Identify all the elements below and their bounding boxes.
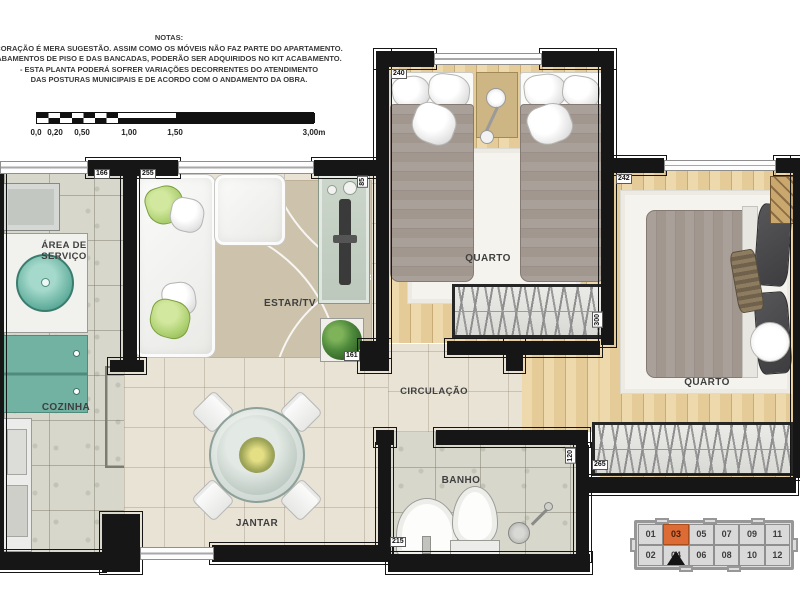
label-circulacao: CIRCULAÇÃO [390,386,478,397]
wall [0,168,4,556]
scale-segment [130,118,176,123]
dim-tag: 255 [140,169,156,179]
lamp-base [480,130,494,144]
sink-faucet [422,536,431,554]
unit-cell-07[interactable]: 07 [714,524,739,545]
scale-bar-graphic [36,112,314,124]
scale-label: 1,00 [121,128,137,137]
label-line: ÁREA DE [24,240,104,251]
wall-banho-top [436,430,588,445]
wall-door-jamb [506,341,523,371]
label-jantar: JANTAR [222,518,292,529]
dim-tag: 242 [616,174,632,184]
keyplan-grid: 01 03 05 07 09 11 02 04 06 08 10 12 [638,524,790,566]
wall [314,160,376,176]
dim-tag: 166 [94,169,110,179]
label-estar: ESTAR/TV [250,298,330,309]
tv-stand [333,235,357,243]
notes-line: - ESTA PLANTA PODERÁ SOFRER VARIAÇÕES DE… [0,65,350,76]
label-quarto1: QUARTO [455,253,521,264]
notes-line: DAS POSTURAS MUNICIPAIS E DE ACORDO COM … [0,75,350,86]
keyplan-notch [791,538,798,552]
triangle-up-icon [667,551,685,565]
wall-stub [360,341,389,371]
dim-tag: 240 [391,69,407,79]
dim-tag: 265 [592,460,608,470]
wall-quarto2-bottom [588,477,796,493]
tv-cabinet [318,174,370,304]
scale-label: 0,20 [47,128,63,137]
keyplan-notch [727,566,741,572]
dim-tag: 85 [357,176,368,188]
building-key-plan: 01 03 05 07 09 11 02 04 06 08 10 12 [634,520,794,570]
unit-cell-09[interactable]: 09 [739,524,764,545]
keyplan-notch [630,538,637,552]
sliding-door-terrace [140,547,214,560]
scale-segment [176,113,315,123]
wall-quarto2-right [793,158,800,478]
scale-segment [37,118,130,123]
wall-stub [376,430,394,445]
washing-machine-knob [41,278,50,287]
notes-line: ABAMENTOS DE PISO E DAS BANCADAS, PODERÃ… [0,54,350,65]
floor-plan-canvas: 166 255 240 242 161 85 300 120 215 265 Á… [0,0,800,600]
unit-cell-11[interactable]: 11 [765,524,790,545]
kitchen-stove [6,485,28,537]
dim-tag: 161 [344,351,360,361]
keyplan-notch [679,566,693,572]
window-estar [178,161,314,174]
wall-cozinha-bottom [0,552,104,570]
notes-title: NOTAS: [0,33,350,44]
sofa-chaise [214,174,286,246]
unit-cell-01[interactable]: 01 [638,524,663,545]
kitchen-sink [7,429,27,475]
table-centerpiece [239,437,275,473]
dim-tag: 300 [592,312,603,328]
notes-block: NOTAS: CORAÇÃO É MERA SUGESTÃO. ASSIM CO… [0,33,350,86]
shower-head [508,522,530,544]
label-area-servico: ÁREA DE SERVIÇO [24,240,104,262]
shower-knob [544,502,553,511]
bedside-table-round [750,322,790,362]
unit-cell-02[interactable]: 02 [638,545,663,566]
window-quarto1 [434,53,542,65]
scale-label: 3,00m [303,128,326,137]
wall-corner-step [102,514,140,572]
wardrobe-quarto2 [592,422,794,476]
decor-circle [343,181,357,195]
dim-tag: 215 [390,537,406,547]
wall-quarto1-right [601,51,614,345]
scale-label: 0,50 [74,128,90,137]
unit-cell-06[interactable]: 06 [689,545,714,566]
label-banho: BANHO [432,475,490,486]
unit-cell-10[interactable]: 10 [739,545,764,566]
lamp-shade [486,88,506,108]
laundry-tank [2,183,60,231]
scale-label: 1,50 [167,128,183,137]
wall-banho-bottom [388,554,590,572]
decor-circle [327,185,337,195]
dim-tag: 120 [565,448,576,464]
floor-quarto2-entry [522,352,600,432]
unit-cell-12[interactable]: 12 [765,545,790,566]
wall-jantar-bottom [212,545,390,562]
kitchen-counter [2,418,32,552]
wall-circulacao-top [447,341,600,355]
wall [614,158,664,173]
unit-cell-03-selected[interactable]: 03 [663,524,688,545]
wardrobe-quarto1 [452,284,606,338]
cabinet-knob [73,388,80,395]
wall [123,168,137,364]
label-cozinha: COZINHA [28,402,104,413]
wall-banho-right [576,445,589,560]
scale-label: 0,0 [30,128,41,137]
window-quarto2 [664,160,776,171]
wall [110,360,144,372]
wall-quarto1-left [376,51,389,356]
unit-cell-05[interactable]: 05 [689,524,714,545]
unit-cell-08[interactable]: 08 [714,545,739,566]
label-line: SERVIÇO [24,251,104,262]
wall [376,51,434,67]
cabinet-knob [73,350,80,357]
label-quarto2: QUARTO [674,377,740,388]
scale-bar: 0,0 0,20 0,50 1,00 1,50 3,00m [28,112,348,142]
notes-line: CORAÇÃO É MERA SUGESTÃO. ASSIM COMO OS M… [0,44,350,55]
window-servico [0,161,88,174]
